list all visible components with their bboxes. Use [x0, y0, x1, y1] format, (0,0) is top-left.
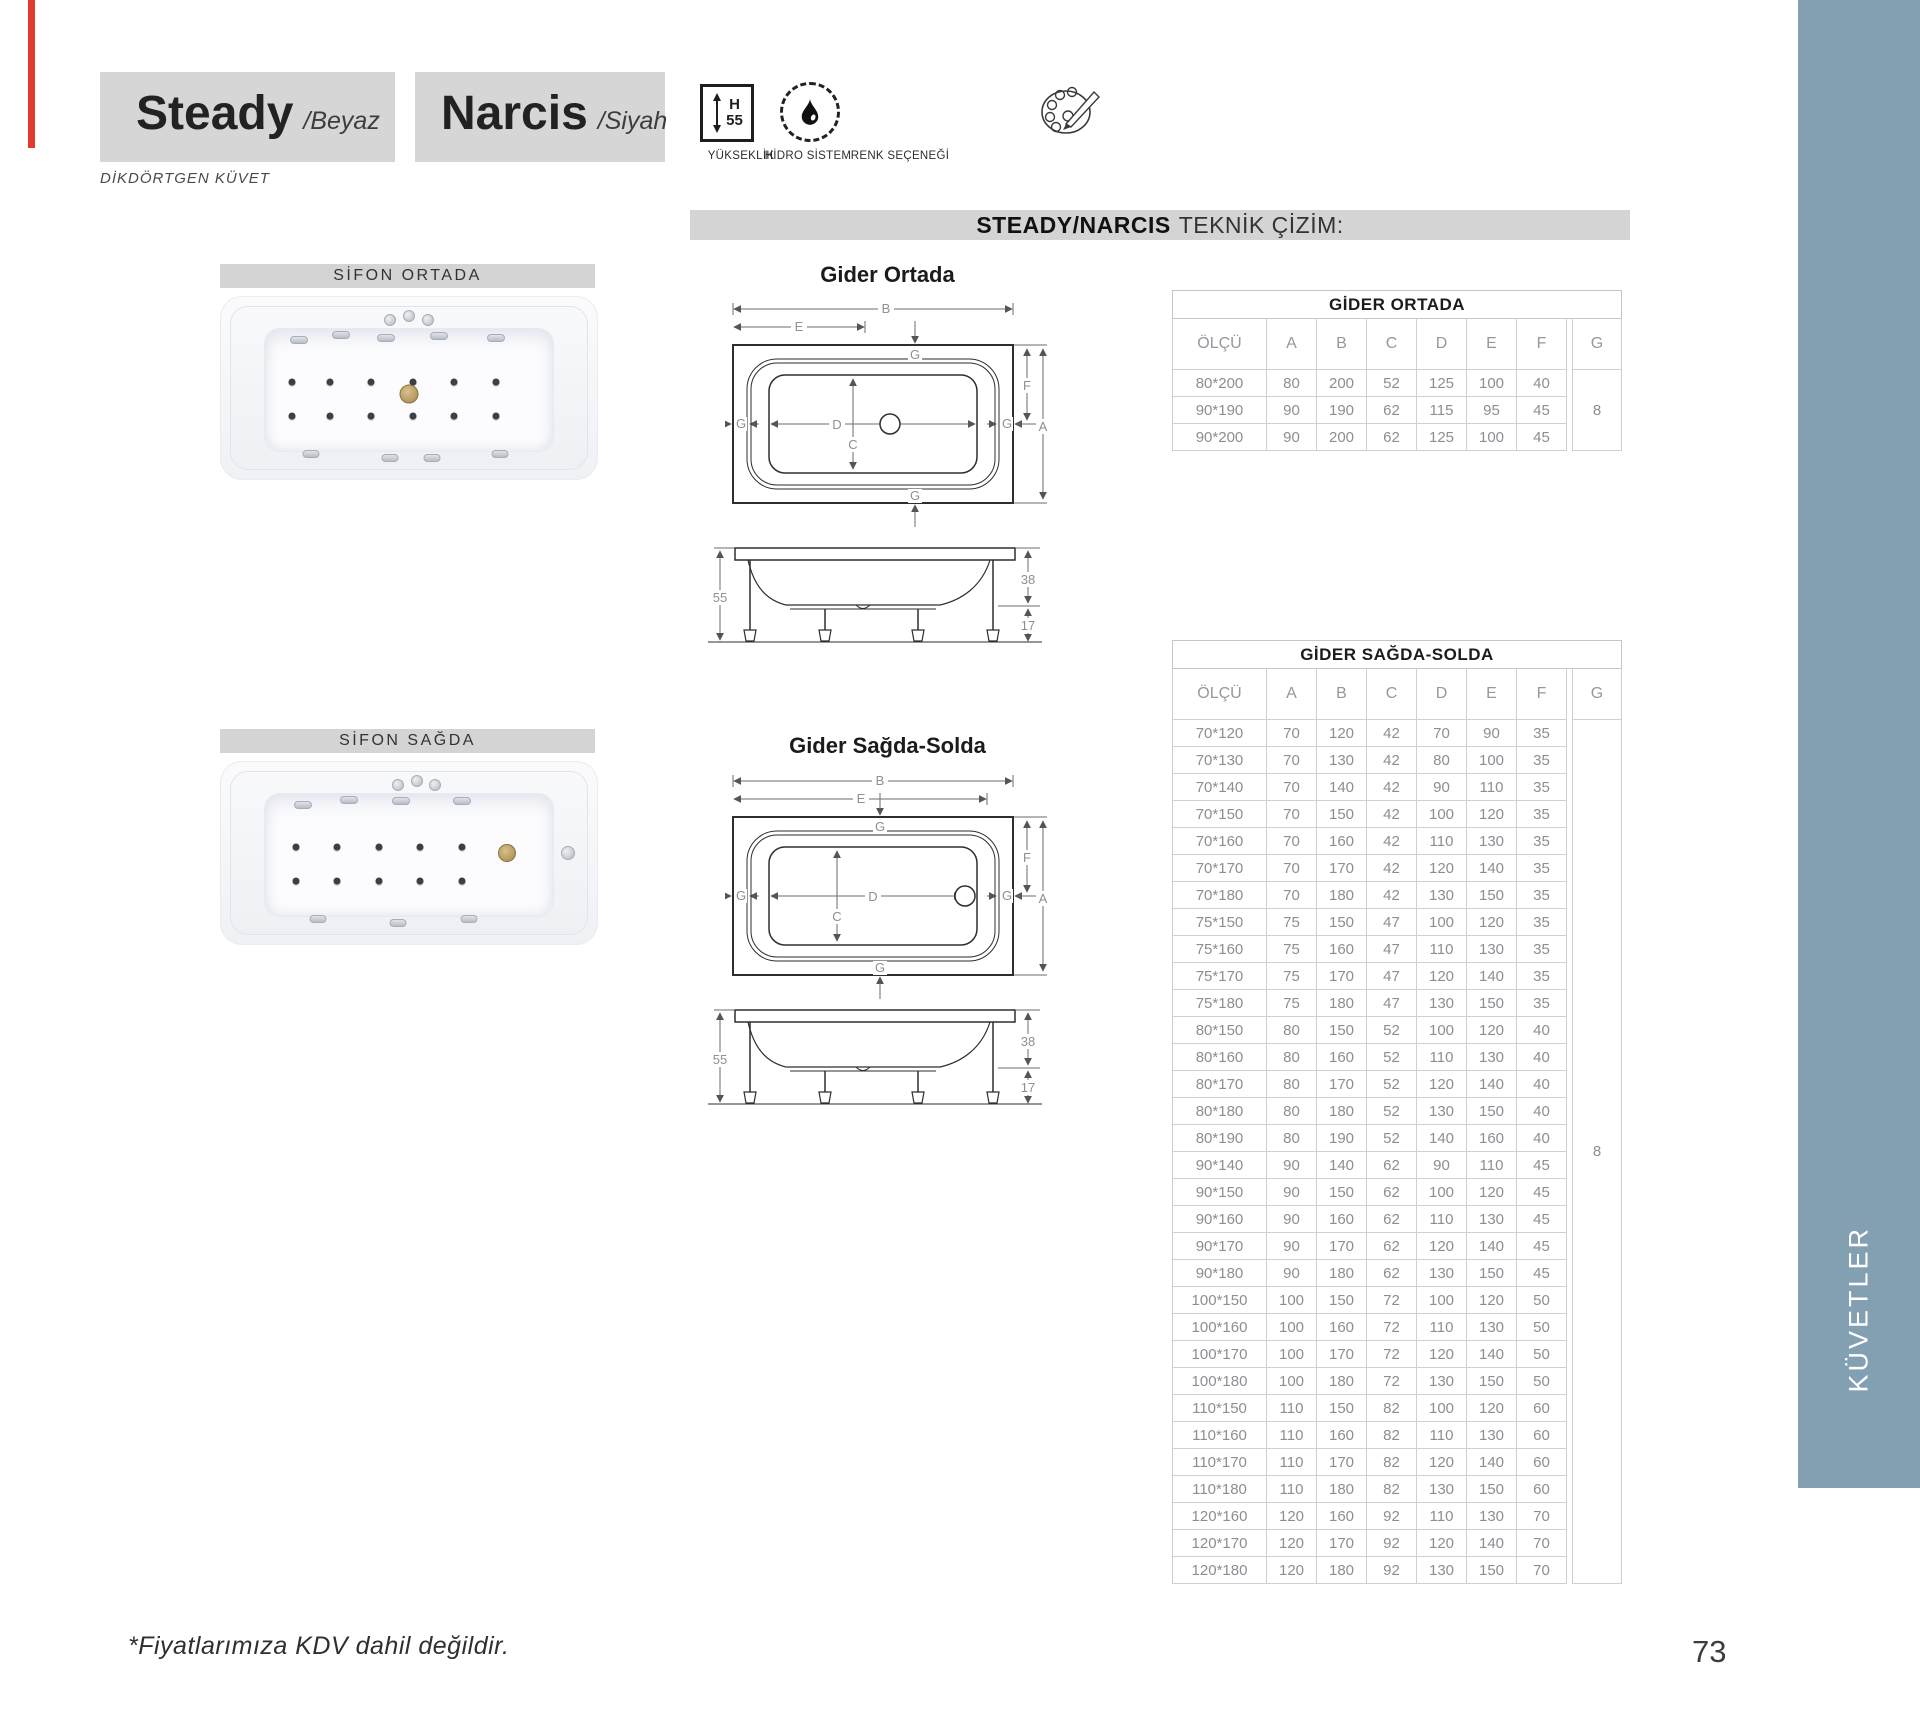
side-view-drawing-1: 55 38 17 — [690, 540, 1080, 652]
table-cell: 40 — [1517, 1044, 1567, 1071]
table-cell: 45 — [1517, 1206, 1567, 1233]
table-row: 110*1701101708212014060 — [1172, 1449, 1622, 1476]
table-row: 75*160751604711013035 — [1172, 936, 1622, 963]
table-cell: 130 — [1467, 1044, 1517, 1071]
rim-jet — [340, 796, 358, 804]
table-cell: 80 — [1267, 1044, 1317, 1071]
table-cell: 45 — [1517, 1233, 1567, 1260]
table-cell: 160 — [1317, 1314, 1367, 1341]
size-cell: 90*140 — [1172, 1152, 1267, 1179]
table-cell: 120 — [1467, 1179, 1517, 1206]
overflow-cap — [561, 846, 575, 860]
dim-55: 55 — [713, 1052, 727, 1067]
table-row: 70*180701804213015035 — [1172, 882, 1622, 909]
drain — [498, 844, 516, 862]
table-cell: 50 — [1517, 1368, 1567, 1395]
table-cell: 90 — [1417, 1152, 1467, 1179]
table-cell: 70 — [1267, 720, 1317, 747]
table-cell: 130 — [1467, 1206, 1517, 1233]
table-cell: 110 — [1417, 1314, 1467, 1341]
size-cell: 80*180 — [1172, 1098, 1267, 1125]
table-cell: 100 — [1417, 1287, 1467, 1314]
table-cell: 130 — [1417, 882, 1467, 909]
table-cell: 130 — [1417, 1098, 1467, 1125]
table-cell: 52 — [1367, 370, 1417, 397]
section-title-bold: STEADY/NARCIS — [976, 212, 1170, 239]
product-name: Steady — [136, 90, 293, 138]
jet-dot — [417, 844, 424, 851]
section-title-rest: TEKNİK ÇİZİM: — [1179, 212, 1344, 239]
table-cell: 42 — [1367, 828, 1417, 855]
table-cell: 150 — [1317, 1287, 1367, 1314]
rim-jet — [392, 797, 410, 805]
dim-label-g-top: G — [875, 819, 885, 834]
control-knob — [411, 775, 423, 787]
table-cell: 62 — [1367, 397, 1417, 424]
jet-dot — [375, 844, 382, 851]
table-cell: 90 — [1417, 774, 1467, 801]
product-box-narcis: Narcis /Siyah — [415, 72, 665, 162]
table-cell: 150 — [1467, 1368, 1517, 1395]
rim-jet — [461, 915, 478, 923]
table-cell: 70 — [1267, 882, 1317, 909]
table-cell: 150 — [1317, 909, 1367, 936]
table-cell: 140 — [1467, 963, 1517, 990]
table-cell: 70 — [1517, 1530, 1567, 1557]
table-row: 90*150901506210012045 — [1172, 1179, 1622, 1206]
table-cell: 35 — [1517, 963, 1567, 990]
table-cell: 35 — [1517, 855, 1567, 882]
table-cell: 160 — [1317, 1044, 1367, 1071]
table-cell: 150 — [1317, 801, 1367, 828]
column-header: C — [1367, 669, 1417, 720]
section-title-bar: STEADY/NARCIS TEKNİK ÇİZİM: — [690, 210, 1630, 240]
table-cell: 35 — [1517, 909, 1567, 936]
size-cell: 80*200 — [1172, 370, 1267, 397]
table-cell: 140 — [1467, 1449, 1517, 1476]
jet-dot — [288, 412, 295, 419]
hydro-label: HİDRO SİSTEM — [763, 150, 853, 162]
jet-dot — [458, 844, 465, 851]
table-cell: 70 — [1517, 1503, 1567, 1530]
size-cell: 90*180 — [1172, 1260, 1267, 1287]
table-cell: 150 — [1467, 1098, 1517, 1125]
table-cell: 130 — [1417, 1476, 1467, 1503]
size-cell: 120*160 — [1172, 1503, 1267, 1530]
table-cell: 100 — [1467, 747, 1517, 774]
table-cell: 62 — [1367, 1233, 1417, 1260]
table-cell: 150 — [1467, 882, 1517, 909]
dim-label-f: F — [1023, 850, 1031, 865]
table-cell: 120 — [1317, 720, 1367, 747]
table-row: 100*1501001507210012050 — [1172, 1287, 1622, 1314]
jet-dot — [409, 412, 416, 419]
table-cell: 35 — [1517, 936, 1567, 963]
jet-dot — [375, 877, 382, 884]
table-cell: 120 — [1417, 1530, 1467, 1557]
jet-dot — [492, 412, 499, 419]
jet-dot — [334, 877, 341, 884]
column-header: A — [1267, 669, 1317, 720]
table-cell: 120 — [1267, 1557, 1317, 1584]
table-cell: 140 — [1467, 1341, 1517, 1368]
table-cell: 110 — [1417, 1206, 1467, 1233]
table-cell: 120 — [1467, 1395, 1517, 1422]
table-cell: 75 — [1267, 990, 1317, 1017]
table-cell: 92 — [1367, 1503, 1417, 1530]
table-cell: 47 — [1367, 963, 1417, 990]
updown-arrow-icon — [711, 93, 723, 133]
jet-dot — [417, 877, 424, 884]
table-cell: 80 — [1267, 1071, 1317, 1098]
table-cell: 100 — [1267, 1341, 1317, 1368]
table-cell: 42 — [1367, 747, 1417, 774]
photo-label-sifon-ortada: SİFON ORTADA — [220, 264, 595, 288]
table-cell: 62 — [1367, 1152, 1417, 1179]
table-cell: 92 — [1367, 1530, 1417, 1557]
dim-label-e: E — [857, 791, 866, 806]
table-cell: 110 — [1417, 828, 1467, 855]
rim-jet — [430, 332, 448, 340]
dim-label-g-bottom: G — [875, 960, 885, 975]
table-row: 80*160801605211013040 — [1172, 1044, 1622, 1071]
table-cell: 42 — [1367, 774, 1417, 801]
table-cell: 170 — [1317, 1233, 1367, 1260]
size-cell: 75*160 — [1172, 936, 1267, 963]
table-cell: 130 — [1467, 936, 1517, 963]
size-cell: 100*150 — [1172, 1287, 1267, 1314]
table-cell: 82 — [1367, 1422, 1417, 1449]
table-cell: 62 — [1367, 1179, 1417, 1206]
column-header: D — [1417, 669, 1467, 720]
dim-label-g-left: G — [736, 416, 746, 431]
table-cell: 100 — [1267, 1314, 1317, 1341]
table-cell: 130 — [1467, 828, 1517, 855]
table-cell: 35 — [1517, 828, 1567, 855]
table-cell: 115 — [1417, 397, 1467, 424]
table-row: 90*200902006212510045 — [1172, 424, 1622, 451]
vat-footnote: *Fiyatlarımıza KDV dahil değildir. — [128, 1632, 510, 1661]
side-view-drawing-2: 55 38 17 — [690, 1002, 1080, 1114]
table-cell: 60 — [1517, 1422, 1567, 1449]
table-row: 100*1701001707212014050 — [1172, 1341, 1622, 1368]
table-cell: 150 — [1317, 1395, 1367, 1422]
table-cell: 190 — [1317, 397, 1367, 424]
rim-jet — [310, 915, 327, 923]
category-label: DİKDÖRTGEN KÜVET — [100, 170, 270, 187]
table-title: GİDER ORTADA — [1172, 290, 1622, 319]
table-cell: 180 — [1317, 882, 1367, 909]
g-value-cell: 8 — [1572, 720, 1622, 1584]
bleed-mark — [28, 0, 35, 148]
table-cell: 120 — [1417, 1341, 1467, 1368]
table-row: 75*180751804713015035 — [1172, 990, 1622, 1017]
table-cell: 120 — [1417, 1233, 1467, 1260]
size-cell: 70*180 — [1172, 882, 1267, 909]
jet-dot — [451, 412, 458, 419]
table-cell: 52 — [1367, 1044, 1417, 1071]
column-header: ÖLÇÜ — [1172, 669, 1267, 720]
table-cell: 90 — [1267, 1233, 1317, 1260]
table-cell: 120 — [1417, 855, 1467, 882]
jet-dot — [368, 412, 375, 419]
color-option-label: RENK SEÇENEĞİ — [850, 150, 950, 162]
jet-dot — [492, 379, 499, 386]
table-cell: 180 — [1317, 1098, 1367, 1125]
size-cell: 110*180 — [1172, 1476, 1267, 1503]
table-cell: 110 — [1267, 1395, 1317, 1422]
table-cell: 72 — [1367, 1341, 1417, 1368]
dim-label-d: D — [868, 889, 877, 904]
table-cell: 80 — [1267, 1125, 1317, 1152]
table-cell: 95 — [1467, 397, 1517, 424]
table-cell: 140 — [1317, 1152, 1367, 1179]
control-knob — [392, 779, 404, 791]
size-cell: 80*160 — [1172, 1044, 1267, 1071]
table-cell: 170 — [1317, 1530, 1367, 1557]
table-row: 110*1501101508210012060 — [1172, 1395, 1622, 1422]
table-cell: 60 — [1517, 1395, 1567, 1422]
table-cell: 110 — [1467, 774, 1517, 801]
table-gider-sagda-solda: GİDER SAĞDA-SOLDAÖLÇÜABCDEFG70*120701204… — [1172, 640, 1622, 1584]
size-cell: 75*180 — [1172, 990, 1267, 1017]
size-cell: 80*170 — [1172, 1071, 1267, 1098]
table-gider-ortada: GİDER ORTADAÖLÇÜABCDEFG80*20080200521251… — [1172, 290, 1622, 451]
table-cell: 150 — [1467, 1476, 1517, 1503]
table-cell: 90 — [1267, 397, 1317, 424]
jet-dot — [368, 379, 375, 386]
table-cell: 52 — [1367, 1098, 1417, 1125]
table-row: 100*1801001807213015050 — [1172, 1368, 1622, 1395]
table-cell: 72 — [1367, 1368, 1417, 1395]
table-cell: 90 — [1267, 424, 1317, 451]
table-cell: 200 — [1317, 370, 1367, 397]
table-row: 80*2008020052125100408 — [1172, 370, 1622, 397]
height-icon: H 55 — [700, 84, 754, 142]
table-cell: 72 — [1367, 1287, 1417, 1314]
table-cell: 35 — [1517, 774, 1567, 801]
table-cell: 47 — [1367, 909, 1417, 936]
table-cell: 170 — [1317, 963, 1367, 990]
dim-label-b: B — [882, 301, 891, 316]
table-row: 90*180901806213015045 — [1172, 1260, 1622, 1287]
jet-dot — [292, 877, 299, 884]
sidebar-label: KÜVETLER — [1844, 1226, 1875, 1393]
rim-jet — [290, 336, 308, 344]
table-row: 70*14070140429011035 — [1172, 774, 1622, 801]
column-header: B — [1317, 319, 1367, 370]
table-cell: 40 — [1517, 1125, 1567, 1152]
column-header: F — [1517, 319, 1567, 370]
size-cell: 75*170 — [1172, 963, 1267, 990]
table-cell: 75 — [1267, 963, 1317, 990]
product-box-steady: Steady /Beyaz — [100, 72, 395, 162]
table-cell: 120 — [1417, 1449, 1467, 1476]
jet-dot — [334, 844, 341, 851]
table-cell: 90 — [1267, 1206, 1317, 1233]
jet-dot — [326, 412, 333, 419]
table-cell: 100 — [1267, 1287, 1317, 1314]
dim-17: 17 — [1021, 1080, 1035, 1095]
size-cell: 75*150 — [1172, 909, 1267, 936]
table-row: 120*1801201809213015070 — [1172, 1557, 1622, 1584]
dim-label-c: C — [848, 437, 857, 452]
table-cell: 180 — [1317, 990, 1367, 1017]
table-cell: 92 — [1367, 1557, 1417, 1584]
table-cell: 40 — [1517, 1098, 1567, 1125]
table-row: 80*150801505210012040 — [1172, 1017, 1622, 1044]
palette-icon — [1038, 80, 1104, 142]
dim-17: 17 — [1021, 618, 1035, 633]
control-knob — [384, 314, 396, 326]
table-cell: 52 — [1367, 1071, 1417, 1098]
table-cell: 110 — [1417, 1503, 1467, 1530]
table-cell: 140 — [1467, 1530, 1517, 1557]
table-cell: 120 — [1417, 963, 1467, 990]
table-cell: 120 — [1467, 909, 1517, 936]
table-cell: 35 — [1517, 720, 1567, 747]
table-cell: 130 — [1317, 747, 1367, 774]
table-cell: 100 — [1467, 424, 1517, 451]
table-cell: 45 — [1517, 397, 1567, 424]
size-cell: 100*160 — [1172, 1314, 1267, 1341]
table-cell: 140 — [1417, 1125, 1467, 1152]
table-cell: 160 — [1317, 1422, 1367, 1449]
table-cell: 40 — [1517, 370, 1567, 397]
table-cell: 170 — [1317, 1449, 1367, 1476]
table-cell: 120 — [1417, 1071, 1467, 1098]
rim-jet — [382, 454, 399, 462]
table-cell: 70 — [1267, 828, 1317, 855]
table-row: 100*1601001607211013050 — [1172, 1314, 1622, 1341]
drawing-title-gider-ortada: Gider Ortada — [725, 262, 1050, 288]
height-value: 55 — [726, 113, 743, 130]
table-cell: 50 — [1517, 1287, 1567, 1314]
dim-38: 38 — [1021, 572, 1035, 587]
table-cell: 47 — [1367, 990, 1417, 1017]
g-value-cell: 8 — [1572, 370, 1622, 451]
dim-label-g-left: G — [736, 888, 746, 903]
page-number: 73 — [1692, 1634, 1726, 1670]
column-header: E — [1467, 669, 1517, 720]
rim-jet — [423, 454, 440, 462]
table-cell: 160 — [1317, 936, 1367, 963]
table-cell: 45 — [1517, 1179, 1567, 1206]
size-cell: 70*170 — [1172, 855, 1267, 882]
table-cell: 100 — [1417, 801, 1467, 828]
product-variant: /Siyah — [598, 107, 667, 136]
size-cell: 90*200 — [1172, 424, 1267, 451]
table-cell: 35 — [1517, 990, 1567, 1017]
jet-dot — [458, 877, 465, 884]
table-cell: 62 — [1367, 1206, 1417, 1233]
table-cell: 120 — [1267, 1530, 1317, 1557]
rim-jet — [491, 450, 508, 458]
table-cell: 100 — [1267, 1368, 1317, 1395]
table-cell: 80 — [1267, 1098, 1317, 1125]
size-cell: 110*160 — [1172, 1422, 1267, 1449]
dim-label-f: F — [1023, 378, 1031, 393]
table-cell: 100 — [1417, 909, 1467, 936]
table-cell: 90 — [1267, 1179, 1317, 1206]
column-header: F — [1517, 669, 1567, 720]
table-cell: 62 — [1367, 1260, 1417, 1287]
table-cell: 110 — [1417, 1044, 1467, 1071]
table-row: 90*170901706212014045 — [1172, 1233, 1622, 1260]
dim-55: 55 — [713, 590, 727, 605]
table-cell: 90 — [1267, 1260, 1317, 1287]
table-cell: 180 — [1317, 1260, 1367, 1287]
table-row: 75*170751704712014035 — [1172, 963, 1622, 990]
dim-label-g-right: G — [1002, 416, 1012, 431]
table-cell: 82 — [1367, 1395, 1417, 1422]
size-cell: 70*150 — [1172, 801, 1267, 828]
rim-jet — [377, 334, 395, 342]
table-cell: 140 — [1467, 1071, 1517, 1098]
table-row: 90*14090140629011045 — [1172, 1152, 1622, 1179]
table-cell: 180 — [1317, 1557, 1367, 1584]
dim-label-e: E — [795, 319, 804, 334]
table-cell: 70 — [1267, 747, 1317, 774]
table-cell: 50 — [1517, 1341, 1567, 1368]
table-cell: 75 — [1267, 936, 1317, 963]
size-cell: 120*180 — [1172, 1557, 1267, 1584]
product-variant: /Beyaz — [303, 107, 379, 136]
rim-jet — [332, 331, 350, 339]
size-cell: 110*150 — [1172, 1395, 1267, 1422]
table-cell: 42 — [1367, 720, 1417, 747]
table-cell: 82 — [1367, 1449, 1417, 1476]
table-cell: 75 — [1267, 909, 1317, 936]
control-knob — [403, 310, 415, 322]
table-cell: 45 — [1517, 1260, 1567, 1287]
size-cell: 90*190 — [1172, 397, 1267, 424]
size-cell: 70*160 — [1172, 828, 1267, 855]
table-cell: 35 — [1517, 747, 1567, 774]
table-cell: 120 — [1267, 1503, 1317, 1530]
bathtub-photo-sifon-ortada — [220, 296, 598, 480]
column-header: C — [1367, 319, 1417, 370]
rim-jet — [453, 797, 471, 805]
table-cell: 150 — [1317, 1179, 1367, 1206]
table-cell: 130 — [1467, 1314, 1517, 1341]
table-cell: 42 — [1367, 882, 1417, 909]
table-cell: 110 — [1267, 1476, 1317, 1503]
bathtub-photo-sifon-sagda — [220, 761, 598, 945]
category-sidebar: KÜVETLER — [1798, 0, 1920, 1488]
table-cell: 45 — [1517, 424, 1567, 451]
table-row: 70*150701504210012035 — [1172, 801, 1622, 828]
table-row: 80*190801905214016040 — [1172, 1125, 1622, 1152]
table-cell: 190 — [1317, 1125, 1367, 1152]
table-cell: 40 — [1517, 1071, 1567, 1098]
table-row: 120*1601201609211013070 — [1172, 1503, 1622, 1530]
table-cell: 170 — [1317, 1341, 1367, 1368]
table-cell: 35 — [1517, 882, 1567, 909]
table-cell: 100 — [1417, 1017, 1467, 1044]
column-header: E — [1467, 319, 1517, 370]
table-cell: 130 — [1467, 1503, 1517, 1530]
size-cell: 80*190 — [1172, 1125, 1267, 1152]
size-cell: 70*120 — [1172, 720, 1267, 747]
table-cell: 70 — [1417, 720, 1467, 747]
table-cell: 52 — [1367, 1017, 1417, 1044]
table-cell: 160 — [1317, 1503, 1367, 1530]
table-cell: 35 — [1517, 801, 1567, 828]
size-cell: 70*130 — [1172, 747, 1267, 774]
dim-label-c: C — [832, 909, 841, 924]
table-cell: 120 — [1467, 1017, 1517, 1044]
